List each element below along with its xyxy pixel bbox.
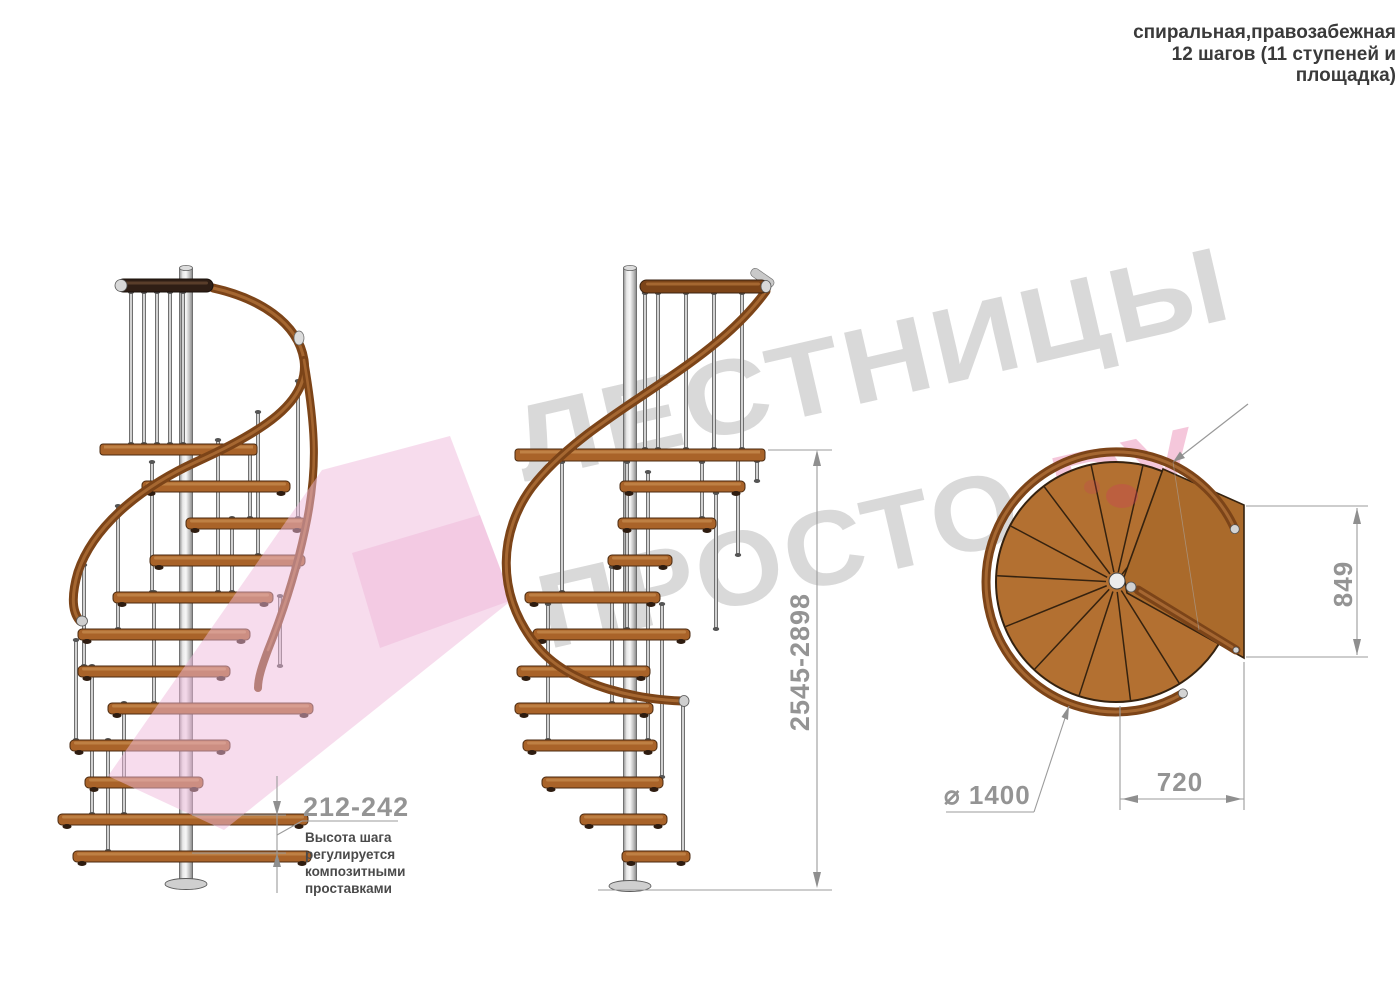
baluster-fitting (754, 479, 760, 483)
step-highlight (529, 594, 656, 597)
step-connector (613, 565, 622, 570)
step-connector (585, 824, 594, 829)
step-connector (63, 824, 72, 829)
step-connector (659, 565, 668, 570)
step-highlight (519, 705, 649, 708)
step-connector (530, 602, 539, 607)
plan-center-pole (1109, 573, 1125, 589)
baluster-fitting (149, 460, 155, 464)
step-highlight (521, 668, 646, 671)
step-connector (520, 713, 529, 718)
baluster-fitting (735, 553, 741, 557)
step-connector (703, 528, 712, 533)
staircase-drawing-canvas (0, 0, 1400, 1000)
dimension-platform-depth: 849 (1328, 524, 1358, 644)
top-rail-side-cap (761, 281, 771, 293)
baluster-fitting (73, 638, 79, 642)
step-connector (83, 676, 92, 681)
step-highlight (612, 557, 668, 560)
step-connector (654, 824, 663, 829)
step-connector (90, 787, 99, 792)
dimension-diameter: ⌀ 1400 (944, 780, 1031, 811)
pole-cap (180, 265, 193, 270)
plan-center-fitting (1126, 582, 1136, 592)
step-connector (625, 491, 634, 496)
baluster-fitting (215, 438, 221, 442)
arrow-down-icon (813, 872, 821, 888)
step-highlight (546, 779, 659, 782)
handrail-side-end-cap (679, 696, 689, 707)
platform-top-rail (117, 279, 213, 292)
step-connector (637, 676, 646, 681)
top-view-staircase (986, 404, 1248, 712)
dimension-step-height: 212-242 (303, 792, 409, 823)
side-view-staircase (506, 265, 775, 891)
handrail-connector (294, 331, 304, 345)
plan-rail-cap-top (1230, 525, 1239, 534)
pole-base-flange (165, 879, 207, 890)
step-connector (650, 787, 659, 792)
step-connector (547, 787, 556, 792)
baluster-fitting (645, 470, 651, 474)
step-connector (732, 491, 741, 496)
step-highlight (626, 853, 686, 856)
balusters-side (545, 291, 760, 858)
watermark-dot-on-disc-2 (1084, 480, 1100, 494)
arrow-down-icon (273, 801, 281, 815)
step-connector (191, 528, 200, 533)
step-connector (647, 602, 656, 607)
step-connector (623, 528, 632, 533)
pole-cap-side (624, 265, 637, 270)
dimension-platform-width: 720 (1130, 767, 1230, 798)
step-connector (644, 750, 653, 755)
step-connector (83, 639, 92, 644)
title-line-3: площадка) (1133, 65, 1396, 87)
baluster-fitting (659, 602, 665, 606)
plan-leader-line (1176, 404, 1248, 460)
step-connector (627, 861, 636, 866)
step-connector (677, 639, 686, 644)
title-line-2: 12 шагов (11 ступеней и (1133, 44, 1396, 66)
step-highlight (537, 631, 686, 634)
step-highlight (624, 483, 741, 486)
step-highlight (584, 816, 663, 819)
step-connector (522, 676, 531, 681)
step-connector (113, 713, 122, 718)
step-connector (155, 565, 164, 570)
arrow-up-icon (813, 450, 821, 466)
arrow-up-right-icon (1062, 706, 1070, 720)
watermark-dot-on-disc (1106, 484, 1138, 508)
platform-top-rail-side (640, 280, 768, 293)
plan-rail-cap-bottom (1178, 689, 1187, 698)
dia-leader (1034, 706, 1069, 812)
top-rail-side-highlight (646, 283, 760, 286)
step-highlight (146, 483, 286, 486)
plan-leader-arrowhead (1173, 452, 1185, 463)
top-rail-highlight (122, 282, 208, 285)
step-highlight (622, 520, 712, 523)
step-height-note: Высота шага регулируется композитными пр… (305, 829, 413, 897)
plan-entry-rail-cap (1233, 647, 1239, 653)
platform-side-highlight (520, 451, 760, 454)
step-connector (277, 491, 286, 496)
top-rail-cap (115, 280, 127, 292)
step-connector (528, 750, 537, 755)
dimension-total-height: 2545-2898 (785, 552, 815, 772)
handrail-end-cap (77, 616, 88, 626)
step-connector (75, 750, 84, 755)
step-connector (118, 602, 127, 607)
drawing-title: спиральная,правозабежная 12 шагов (11 ст… (1133, 22, 1396, 87)
title-line-1: спиральная,правозабежная (1133, 22, 1396, 44)
baluster-fitting (255, 410, 261, 414)
step-highlight (190, 520, 302, 523)
arrow-up-icon (1353, 508, 1361, 524)
step-connector (78, 861, 87, 866)
step-highlight (527, 742, 653, 745)
step-connector (640, 713, 649, 718)
baluster-fitting (713, 627, 719, 631)
step-highlight (62, 816, 304, 819)
step-connector (677, 861, 686, 866)
technical-drawing-page: { "header": { "lines": ["спиральная,прав… (0, 0, 1400, 1000)
